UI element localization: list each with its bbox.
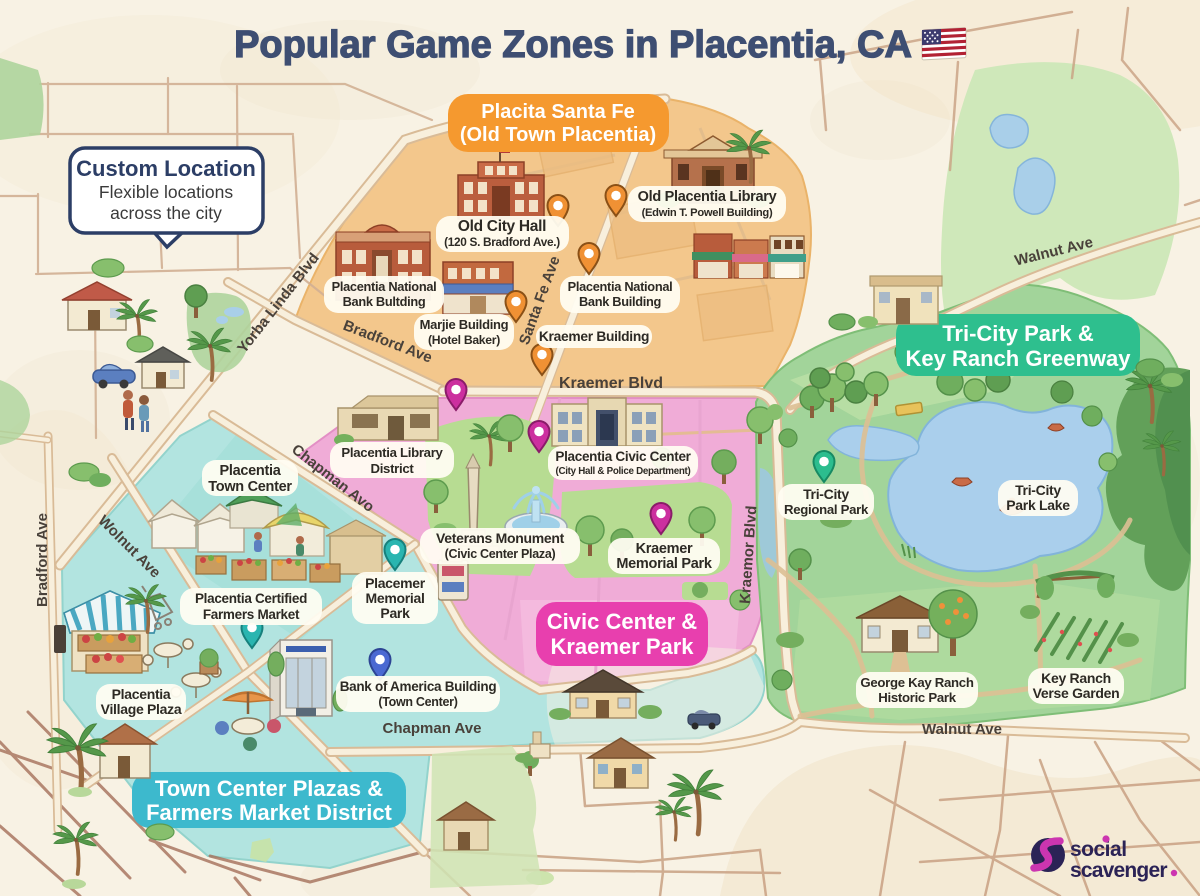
- svg-text:Civic Center &: Civic Center &: [547, 609, 697, 634]
- svg-text:Park: Park: [380, 605, 410, 621]
- svg-text:Placentia: Placentia: [112, 686, 171, 702]
- svg-text:social: social: [1070, 838, 1127, 861]
- svg-text:Tri-City: Tri-City: [1015, 482, 1061, 498]
- svg-text:Tri-City Park &: Tri-City Park &: [942, 321, 1094, 346]
- svg-text:Marjie Building: Marjie Building: [420, 317, 509, 332]
- svg-text:Kraemer Park: Kraemer Park: [550, 634, 694, 659]
- svg-text:Kraemer: Kraemer: [636, 541, 693, 557]
- svg-text:Memorial Park: Memorial Park: [616, 556, 712, 572]
- svg-text:(Civic Center Plaza): (Civic Center Plaza): [445, 547, 556, 561]
- svg-text:District: District: [370, 461, 414, 476]
- svg-text:(Town Center): (Town Center): [378, 695, 457, 709]
- svg-text:Veterans Monument: Veterans Monument: [436, 530, 565, 546]
- svg-text:Village Plaza: Village Plaza: [101, 701, 182, 717]
- svg-text:scavenger: scavenger: [1070, 859, 1167, 882]
- svg-text:Placentia Certified: Placentia Certified: [195, 591, 307, 606]
- svg-text:Bank of America Building: Bank of America Building: [340, 679, 497, 694]
- svg-text:(Old Town Placentia): (Old Town Placentia): [460, 124, 656, 146]
- svg-text:George Kay Ranch: George Kay Ranch: [860, 675, 973, 690]
- svg-text:Town Center: Town Center: [208, 479, 292, 495]
- svg-text:Bank Bultding: Bank Bultding: [343, 294, 426, 309]
- svg-text:Flexible locations: Flexible locations: [99, 182, 233, 202]
- svg-text:Key Ranch Greenway: Key Ranch Greenway: [906, 346, 1132, 371]
- svg-text:Farmers Market District: Farmers Market District: [146, 800, 392, 825]
- svg-text:Placentia: Placentia: [220, 463, 282, 479]
- svg-text:(City Hall & Police Department: (City Hall & Police Department): [556, 466, 691, 477]
- svg-text:Old City Hall: Old City Hall: [458, 218, 546, 235]
- svg-text:Verse Garden: Verse Garden: [1033, 685, 1120, 701]
- svg-text:Tri-City: Tri-City: [803, 486, 849, 502]
- svg-text:Memorial: Memorial: [365, 590, 424, 606]
- svg-text:Town Center Plazas &: Town Center Plazas &: [155, 776, 383, 801]
- svg-text:Farmers Market: Farmers Market: [203, 607, 300, 622]
- svg-text:Kraemer Blvd: Kraemer Blvd: [559, 375, 663, 392]
- svg-text:Placentia Library: Placentia Library: [341, 445, 443, 460]
- svg-text:Old Placentia Library: Old Placentia Library: [638, 189, 777, 205]
- svg-text:Bradford Ave: Bradford Ave: [34, 513, 51, 607]
- svg-text:Popular Game Zones in Placenti: Popular Game Zones in Placentia, CA: [234, 24, 912, 66]
- svg-text:Kraemer Building: Kraemer Building: [539, 329, 649, 344]
- svg-text:(120 S. Bradford Ave.): (120 S. Bradford Ave.): [444, 235, 560, 249]
- svg-text:Placentia National: Placentia National: [332, 279, 437, 294]
- svg-text:Historic Park: Historic Park: [878, 690, 956, 705]
- svg-text:(Edwin T. Powell Building): (Edwin T. Powell Building): [642, 207, 773, 219]
- svg-text:across the city: across the city: [110, 203, 222, 223]
- svg-text:Walnut Ave: Walnut Ave: [922, 721, 1002, 738]
- svg-text:Regional Park: Regional Park: [784, 502, 869, 517]
- svg-text:Bank Building: Bank Building: [579, 294, 661, 309]
- svg-text:Placita Santa Fe: Placita Santa Fe: [481, 101, 634, 123]
- svg-text:(Hotel Baker): (Hotel Baker): [428, 333, 500, 347]
- svg-text:Placemer: Placemer: [365, 575, 426, 591]
- svg-text:Key Ranch: Key Ranch: [1041, 670, 1111, 686]
- svg-text:Chapman Ave: Chapman Ave: [383, 720, 482, 737]
- svg-text:Park Lake: Park Lake: [1006, 497, 1070, 513]
- svg-text:Custom Location: Custom Location: [76, 156, 256, 181]
- svg-text:Placentia National: Placentia National: [568, 279, 673, 294]
- svg-text:Placentia Civic Center: Placentia Civic Center: [555, 449, 691, 464]
